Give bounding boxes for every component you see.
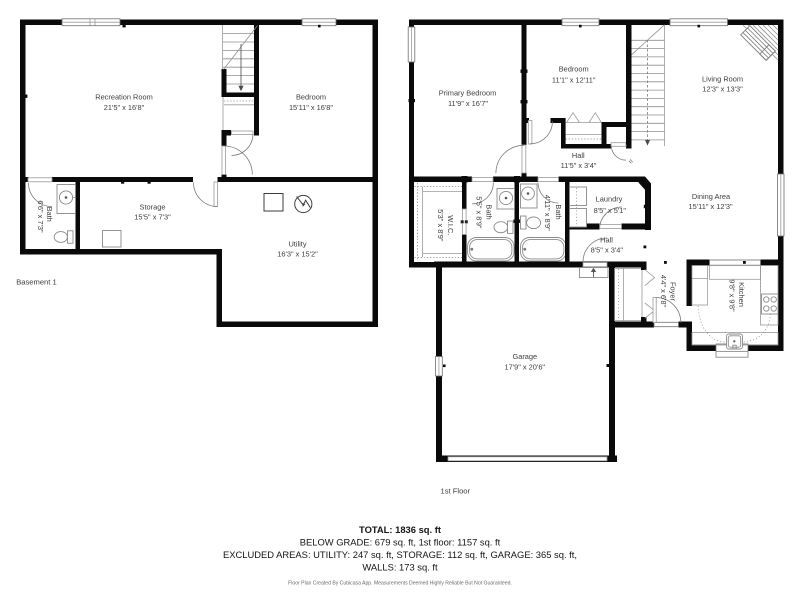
svg-text:W.I.C.: W.I.C.	[446, 215, 455, 235]
svg-text:15'11" x 16'8": 15'11" x 16'8"	[289, 103, 333, 112]
svg-text:Laundry: Laundry	[596, 195, 623, 204]
svg-text:Hall: Hall	[572, 151, 585, 160]
svg-text:15'5" x 7'3": 15'5" x 7'3"	[134, 213, 171, 222]
svg-text:11'1" x 12'11": 11'1" x 12'11"	[552, 76, 596, 85]
svg-text:8'5" x 5'1": 8'5" x 5'1"	[594, 206, 627, 215]
svg-text:15'11" x 12'3": 15'11" x 12'3"	[689, 202, 733, 211]
svg-text:16'3" x 15'2": 16'3" x 15'2"	[277, 250, 318, 259]
svg-text:Kitchen: Kitchen	[737, 282, 746, 307]
svg-text:BELOW GRADE: 679 sq. ft, 1st f: BELOW GRADE: 679 sq. ft, 1st floor: 1157…	[300, 537, 501, 548]
svg-text:17'9" x 20'6": 17'9" x 20'6"	[505, 363, 546, 372]
svg-text:5'5" x 8'9": 5'5" x 8'9"	[474, 196, 483, 229]
svg-text:8'5" x 3'4": 8'5" x 3'4"	[591, 246, 624, 255]
svg-text:Bath: Bath	[45, 207, 54, 222]
svg-text:Basement 1: Basement 1	[16, 278, 57, 287]
svg-text:Utility: Utility	[288, 240, 306, 249]
svg-text:11'5" x 3'4": 11'5" x 3'4"	[561, 161, 597, 170]
svg-text:WALLS: 173 sq. ft: WALLS: 173 sq. ft	[362, 562, 438, 573]
svg-text:9'8" x 9'8": 9'8" x 9'8"	[728, 279, 737, 312]
svg-text:1st Floor: 1st Floor	[441, 486, 471, 495]
svg-text:Garage: Garage	[512, 352, 537, 361]
svg-text:Living Room: Living Room	[702, 75, 743, 84]
svg-text:Bath: Bath	[484, 204, 493, 219]
svg-text:Foyer: Foyer	[669, 282, 678, 301]
svg-text:21'5" x 16'8": 21'5" x 16'8"	[104, 103, 145, 112]
svg-text:5'3" x 8'9": 5'3" x 8'9"	[436, 209, 445, 242]
svg-text:Bedroom: Bedroom	[296, 93, 326, 102]
svg-text:Dining Area: Dining Area	[692, 192, 731, 201]
svg-text:Hall: Hall	[600, 236, 613, 245]
svg-text:Bath: Bath	[554, 204, 563, 219]
svg-text:4'4" x 6'8": 4'4" x 6'8"	[659, 275, 668, 308]
svg-text:Floor Plan Created By Cubicasa: Floor Plan Created By Cubicasa App. Meas…	[288, 581, 512, 587]
svg-text:Bedroom: Bedroom	[559, 65, 589, 74]
svg-text:TOTAL: 1836 sq. ft: TOTAL: 1836 sq. ft	[359, 524, 441, 535]
svg-text:Primary Bedroom: Primary Bedroom	[439, 89, 497, 98]
svg-text:12'3" x 13'3": 12'3" x 13'3"	[702, 85, 743, 94]
svg-text:11'9" x 16'7": 11'9" x 16'7"	[448, 99, 488, 108]
svg-text:4'11" x 8'9": 4'11" x 8'9"	[543, 195, 552, 231]
svg-text:Storage: Storage	[140, 203, 166, 212]
svg-text:Recreation Room: Recreation Room	[95, 93, 153, 102]
svg-text:6'6" x 7'3": 6'6" x 7'3"	[36, 200, 45, 233]
svg-text:EXCLUDED AREAS: UTILITY: 247 s: EXCLUDED AREAS: UTILITY: 247 sq. ft, STO…	[223, 549, 577, 560]
